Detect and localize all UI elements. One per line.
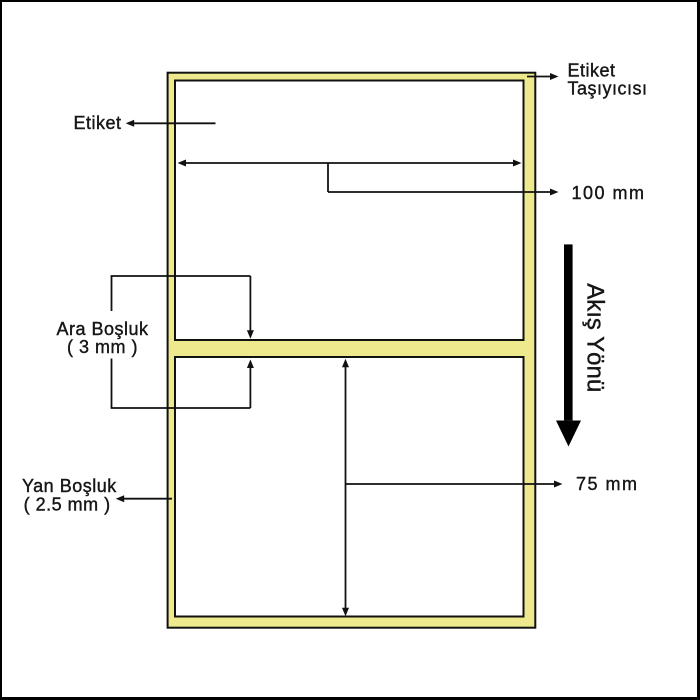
svg-text:( 2.5 mm ): ( 2.5 mm )	[24, 495, 111, 515]
svg-text:Etiket: Etiket	[74, 113, 122, 133]
svg-text:Etiket: Etiket	[568, 61, 616, 81]
svg-text:Taşıyıcısı: Taşıyıcısı	[568, 79, 648, 99]
svg-text:75 mm: 75 mm	[576, 474, 639, 494]
svg-text:100 mm: 100 mm	[572, 183, 646, 203]
svg-text:Yan Boşluk: Yan Boşluk	[22, 476, 117, 496]
svg-text:Ara Boşluk: Ara Boşluk	[56, 319, 149, 339]
svg-text:( 3 mm ): ( 3 mm )	[67, 337, 138, 357]
svg-text:Akış Yönü: Akış Yönü	[581, 283, 608, 392]
